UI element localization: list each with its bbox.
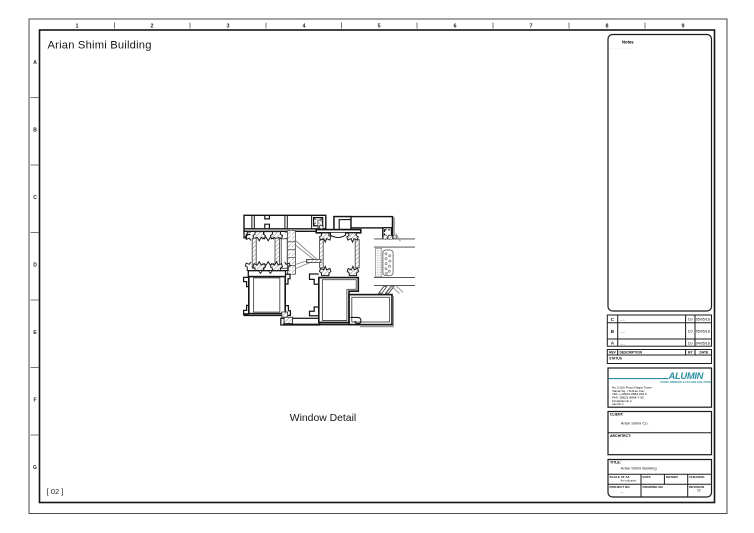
svg-text:DRAWN: DRAWN (666, 475, 678, 479)
svg-text:6: 6 (454, 23, 457, 29)
svg-text:DJ: DJ (688, 330, 693, 334)
svg-text:DATE: DATE (643, 475, 651, 479)
svg-text:3: 3 (227, 23, 230, 29)
svg-text:.....: ..... (620, 330, 625, 334)
svg-text:05/05/18: 05/05/18 (696, 318, 710, 322)
svg-text:ALUMIN: ALUMIN (668, 370, 704, 381)
svg-text:[ 02 ]: [ 02 ] (47, 487, 64, 496)
svg-text:Arian Shimi Co.: Arian Shimi Co. (621, 421, 649, 426)
svg-text:.: . (621, 442, 622, 447)
svg-text:. . . . . .: . . . . . . (611, 45, 633, 49)
svg-text:DOOR, WINDOW & FACADE SOLUTION: DOOR, WINDOW & FACADE SOLUTION (661, 380, 712, 384)
svg-text:B: B (33, 128, 37, 134)
svg-text:5: 5 (378, 23, 381, 29)
svg-text:alumin.ir: alumin.ir (612, 402, 624, 406)
svg-text:05/05/18: 05/05/18 (696, 330, 710, 334)
svg-text:Notes: Notes (622, 40, 634, 45)
svg-text:C: C (33, 195, 37, 201)
svg-text:PROJECT NO: PROJECT NO (610, 485, 631, 489)
svg-text:DJ: DJ (688, 341, 693, 345)
svg-text:—: — (621, 490, 624, 494)
svg-text:BY: BY (688, 350, 693, 354)
svg-text:9: 9 (682, 23, 685, 29)
svg-text:1: 1 (76, 23, 79, 29)
svg-text:STATUS: STATUS (609, 356, 622, 360)
svg-text:Window Detail: Window Detail (290, 413, 356, 424)
svg-text:02: 02 (697, 488, 701, 492)
svg-text:Arian Shimi Building: Arian Shimi Building (621, 465, 657, 470)
svg-text:DESCRIPTION: DESCRIPTION (620, 350, 643, 354)
svg-text:REV: REV (609, 350, 617, 354)
svg-text:DRAWING NO: DRAWING NO (643, 485, 664, 489)
svg-text:2: 2 (151, 23, 154, 29)
svg-text:A: A (33, 60, 37, 66)
svg-text:DATE: DATE (700, 350, 710, 354)
svg-text:DJ: DJ (688, 318, 693, 322)
svg-text:TITLE:: TITLE: (610, 461, 621, 465)
svg-text:7: 7 (530, 23, 533, 29)
svg-text:.....: ..... (620, 318, 625, 322)
svg-text:ARCHITECT:: ARCHITECT: (610, 434, 631, 438)
svg-text:As indicated: As indicated (621, 479, 637, 483)
svg-text:8: 8 (606, 23, 609, 29)
svg-text:04/05/18: 04/05/18 (696, 341, 710, 345)
svg-text:F: F (33, 398, 36, 404)
svg-text:Arian Shimi Building: Arian Shimi Building (48, 40, 152, 52)
svg-text:4: 4 (303, 23, 306, 29)
svg-text:D: D (33, 263, 37, 269)
svg-text:G: G (33, 465, 37, 471)
svg-text:CLIENT:: CLIENT: (610, 413, 624, 417)
svg-text:.....: ..... (620, 341, 625, 345)
